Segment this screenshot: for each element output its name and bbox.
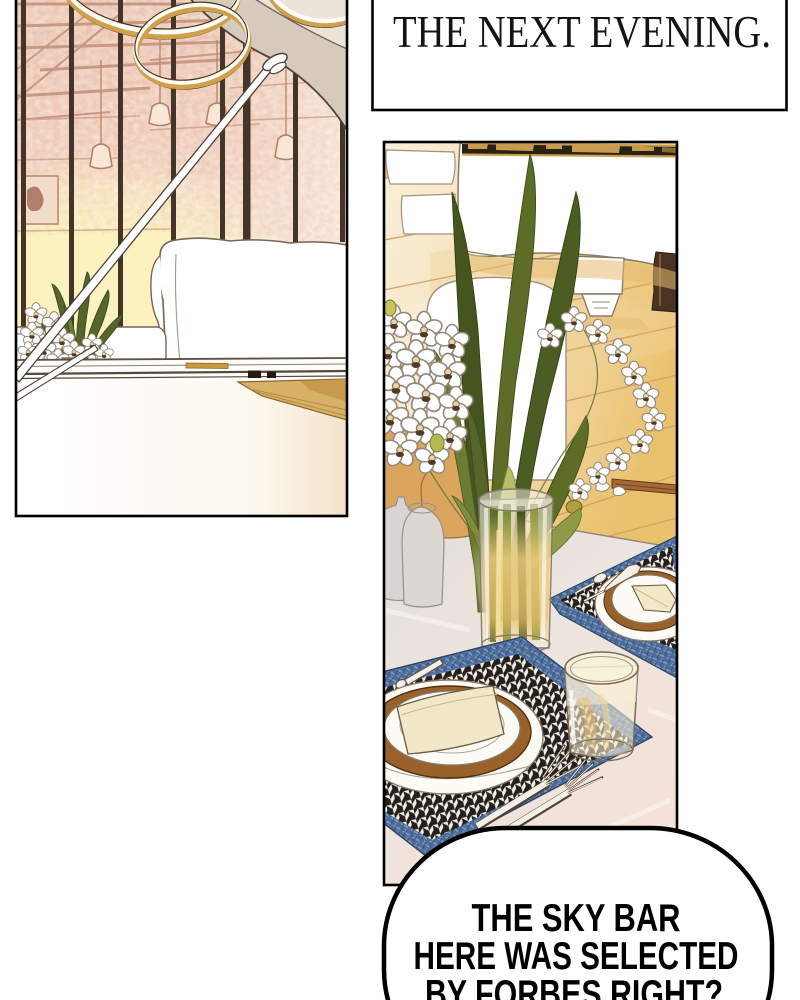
svg-text:BY FORBES RIGHT?: BY FORBES RIGHT? [425,973,723,1000]
svg-text:THE NEXT EVENING.: THE NEXT EVENING. [393,7,771,57]
svg-text:HERE WAS SELECTED: HERE WAS SELECTED [414,935,739,978]
svg-text:THE SKY BAR: THE SKY BAR [472,897,681,940]
